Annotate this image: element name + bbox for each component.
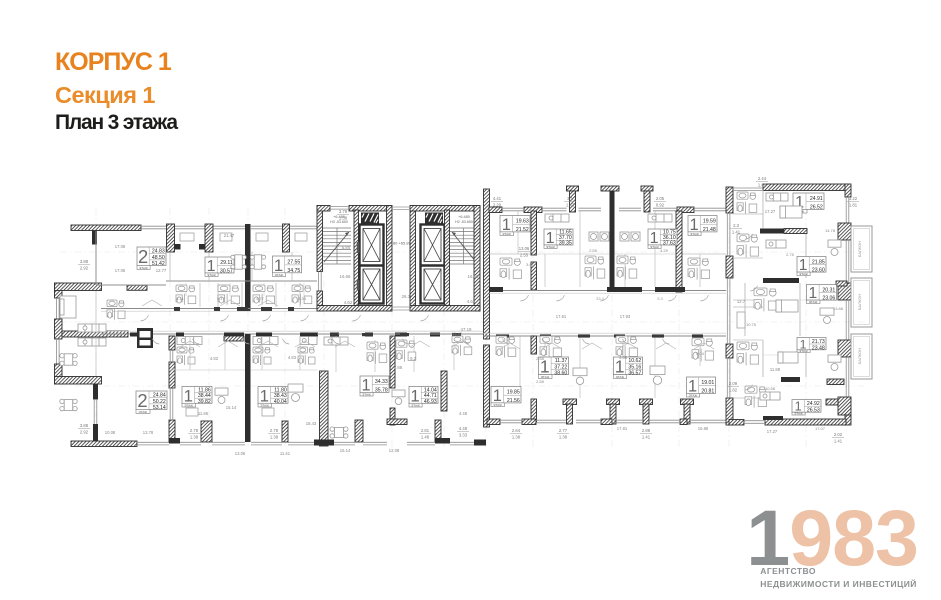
svg-text:ЭТАЖ: ЭТАЖ	[616, 375, 625, 379]
svg-text:1.41: 1.41	[642, 435, 651, 440]
svg-text:4.82: 4.82	[210, 356, 219, 361]
svg-text:10.08: 10.08	[105, 430, 116, 435]
svg-text:Н2 -53.650: Н2 -53.650	[455, 220, 473, 224]
svg-text:ЭТАЖ: ЭТАЖ	[809, 300, 818, 304]
svg-text:37.63: 37.63	[663, 241, 676, 247]
svg-text:26.52: 26.52	[810, 205, 823, 211]
svg-text:4.77: 4.77	[256, 296, 265, 301]
svg-text:46.93: 46.93	[424, 399, 437, 405]
svg-text:15.14: 15.14	[226, 405, 237, 410]
svg-text:4.62: 4.62	[344, 300, 353, 305]
svg-text:БАЛКОН: БАЛКОН	[857, 294, 862, 310]
svg-text:13.06: 13.06	[519, 246, 530, 251]
svg-text:17.27: 17.27	[767, 429, 778, 434]
svg-text:2.09: 2.09	[729, 381, 738, 386]
svg-text:2.88: 2.88	[642, 428, 651, 433]
svg-text:19.85: 19.85	[507, 390, 520, 396]
svg-text:14.78: 14.78	[825, 228, 836, 233]
svg-text:БАЛКОН: БАЛКОН	[857, 348, 862, 364]
svg-text:0.92: 0.92	[656, 203, 665, 208]
svg-text:2.55: 2.55	[589, 248, 598, 253]
svg-text:5.04: 5.04	[696, 351, 705, 356]
svg-text:29.11: 29.11	[220, 260, 233, 266]
svg-text:12.77: 12.77	[156, 268, 167, 273]
svg-text:23.60: 23.60	[812, 267, 825, 273]
svg-text:3.33: 3.33	[459, 433, 468, 438]
svg-text:15.14: 15.14	[340, 448, 351, 453]
svg-text:ЭТАЖ: ЭТАЖ	[650, 245, 659, 249]
svg-text:+6.480: +6.480	[458, 215, 470, 219]
svg-text:БАЛКОН: БАЛКОН	[857, 241, 862, 257]
svg-text:7.88: 7.88	[394, 365, 403, 370]
svg-text:16.66: 16.66	[468, 274, 480, 279]
svg-text:2.58: 2.58	[536, 356, 545, 361]
svg-text:17.93: 17.93	[620, 314, 631, 319]
svg-text:1.38: 1.38	[190, 435, 199, 440]
svg-text:2: 2	[137, 390, 147, 411]
svg-text:17.06: 17.06	[115, 268, 126, 273]
svg-text:38.60: 38.60	[554, 370, 567, 376]
svg-text:13.06: 13.06	[235, 451, 246, 456]
svg-text:2: 2	[138, 246, 148, 267]
svg-text:15.86: 15.86	[698, 426, 709, 431]
svg-text:6.17: 6.17	[217, 296, 226, 301]
svg-text:19.01: 19.01	[701, 380, 714, 386]
svg-text:ЭТАЖ: ЭТАЖ	[275, 273, 284, 277]
svg-text:21.48: 21.48	[703, 227, 716, 233]
svg-text:34.33: 34.33	[375, 379, 388, 385]
svg-text:36.57: 36.57	[628, 370, 641, 376]
svg-text:2.3: 2.3	[733, 223, 739, 228]
svg-text:1.82: 1.82	[729, 388, 738, 393]
svg-text:24.91: 24.91	[810, 196, 823, 202]
svg-text:23.06: 23.06	[822, 295, 835, 301]
svg-text:4.41: 4.41	[493, 196, 502, 201]
svg-text:1.38: 1.38	[559, 435, 568, 440]
svg-text:ЭТАЖ: ЭТАЖ	[689, 393, 698, 397]
svg-text:12.08: 12.08	[389, 448, 400, 453]
svg-text:3.88: 3.88	[80, 259, 89, 264]
svg-text:ЭТАЖ: ЭТАЖ	[493, 403, 502, 407]
svg-text:51.42: 51.42	[152, 261, 165, 267]
svg-text:13.78: 13.78	[143, 430, 154, 435]
svg-text:11.86: 11.86	[198, 411, 209, 416]
svg-text:2.64: 2.64	[512, 428, 521, 433]
svg-text:1.41: 1.41	[834, 439, 843, 444]
svg-text:2.58: 2.58	[536, 379, 545, 384]
svg-text:4.83: 4.83	[288, 355, 297, 360]
svg-text:10.75: 10.75	[746, 322, 757, 327]
svg-text:21.47: 21.47	[224, 233, 235, 238]
svg-text:34.75: 34.75	[287, 268, 300, 274]
svg-text:ЭТАЖ: ЭТАЖ	[184, 403, 193, 407]
svg-text:10.58: 10.58	[765, 386, 776, 391]
svg-text:26.53: 26.53	[807, 408, 820, 414]
svg-text:39.82: 39.82	[198, 399, 211, 405]
svg-text:2.55: 2.55	[520, 253, 529, 258]
svg-text:ЭТАЖ: ЭТАЖ	[690, 232, 699, 236]
svg-text:2.20: 2.20	[493, 203, 502, 208]
svg-text:4.48: 4.48	[459, 411, 468, 416]
svg-text:ЭТАЖ: ЭТАЖ	[794, 412, 803, 416]
svg-text:3.22: 3.22	[849, 196, 858, 201]
svg-text:4.48: 4.48	[459, 426, 468, 431]
svg-text:1.48: 1.48	[421, 435, 430, 440]
svg-text:ЭТАЖ: ЭТАЖ	[362, 392, 371, 396]
svg-text:21.56: 21.56	[507, 398, 520, 404]
svg-text:2.77: 2.77	[559, 428, 568, 433]
svg-text:4.11: 4.11	[176, 296, 184, 301]
svg-text:2.44: 2.44	[758, 176, 767, 181]
svg-text:2.81: 2.81	[421, 428, 430, 433]
svg-text:1.38: 1.38	[270, 435, 279, 440]
svg-text:2.78: 2.78	[270, 428, 279, 433]
svg-text:40.04: 40.04	[274, 399, 287, 405]
svg-text:ЭТАЖ: ЭТАЖ	[546, 245, 555, 249]
svg-text:19.59: 19.59	[703, 219, 716, 225]
svg-text:17.08: 17.08	[115, 244, 126, 249]
svg-text:39.35: 39.35	[559, 241, 572, 247]
svg-text:23.48: 23.48	[812, 345, 825, 351]
svg-text:1.81: 1.81	[849, 203, 858, 208]
svg-text:ЭТАЖ: ЭТАЖ	[411, 403, 420, 407]
svg-text:ЭТАЖ: ЭТАЖ	[799, 349, 808, 353]
svg-text:1.41: 1.41	[732, 230, 741, 235]
svg-text:27.55: 27.55	[287, 259, 300, 265]
svg-text:3.79: 3.79	[339, 209, 348, 214]
svg-text:ЭТАЖ: ЭТАЖ	[138, 410, 147, 414]
svg-text:1.43: 1.43	[566, 203, 575, 208]
svg-text:+7.480 +65.890: +7.480 +65.890	[385, 241, 414, 246]
svg-text:17.07: 17.07	[815, 426, 826, 431]
svg-text:17.81: 17.81	[617, 426, 628, 431]
svg-text:ЭТАЖ: ЭТАЖ	[260, 403, 269, 407]
svg-text:30.57: 30.57	[220, 268, 233, 274]
svg-text:12.7: 12.7	[737, 299, 746, 304]
svg-text:1.38: 1.38	[512, 435, 521, 440]
svg-text:19.63: 19.63	[516, 219, 529, 225]
svg-text:Н3 -53.650: Н3 -53.650	[330, 220, 348, 224]
svg-text:3.34: 3.34	[298, 296, 307, 301]
svg-text:4.85: 4.85	[619, 355, 628, 360]
svg-text:18.43: 18.43	[306, 421, 317, 426]
svg-text:11.88: 11.88	[770, 367, 781, 372]
svg-text:20.81: 20.81	[701, 389, 714, 395]
svg-text:1.87: 1.87	[758, 183, 767, 188]
svg-text:ЭТАЖ: ЭТАЖ	[502, 232, 511, 236]
svg-text:3.1: 3.1	[567, 196, 573, 201]
svg-text:ЭТАЖ: ЭТАЖ	[139, 266, 148, 270]
svg-text:2.92: 2.92	[80, 266, 89, 271]
svg-text:35.78: 35.78	[375, 388, 388, 394]
svg-text:2.05: 2.05	[656, 196, 665, 201]
svg-text:9.2: 9.2	[410, 356, 416, 361]
svg-text:3.88: 3.88	[80, 423, 89, 428]
svg-text:2.92: 2.92	[80, 430, 89, 435]
svg-text:1.38: 1.38	[339, 216, 348, 221]
svg-text:2.78: 2.78	[190, 428, 199, 433]
svg-text:53.14: 53.14	[153, 405, 166, 411]
svg-text:17.27: 17.27	[765, 209, 776, 214]
svg-text:4.62: 4.62	[467, 299, 476, 304]
svg-text:47.19: 47.19	[461, 327, 473, 332]
svg-text:ЭТАЖ: ЭТАЖ	[799, 272, 808, 276]
svg-text:53.47: 53.47	[452, 331, 463, 336]
svg-text:4.29: 4.29	[660, 248, 669, 253]
svg-text:5.84: 5.84	[342, 245, 351, 250]
svg-text:13.88: 13.88	[833, 306, 844, 311]
svg-text:2.02: 2.02	[834, 432, 843, 437]
svg-text:16.66: 16.66	[340, 274, 352, 279]
svg-text:3.97: 3.97	[526, 262, 535, 267]
svg-text:3.3: 3.3	[657, 296, 663, 301]
svg-text:2.75: 2.75	[786, 252, 795, 257]
svg-text:11.41: 11.41	[280, 451, 291, 456]
svg-text:17.61: 17.61	[556, 314, 567, 319]
svg-text:21.52: 21.52	[516, 227, 529, 233]
svg-text:ЭТАЖ: ЭТАЖ	[207, 273, 216, 277]
